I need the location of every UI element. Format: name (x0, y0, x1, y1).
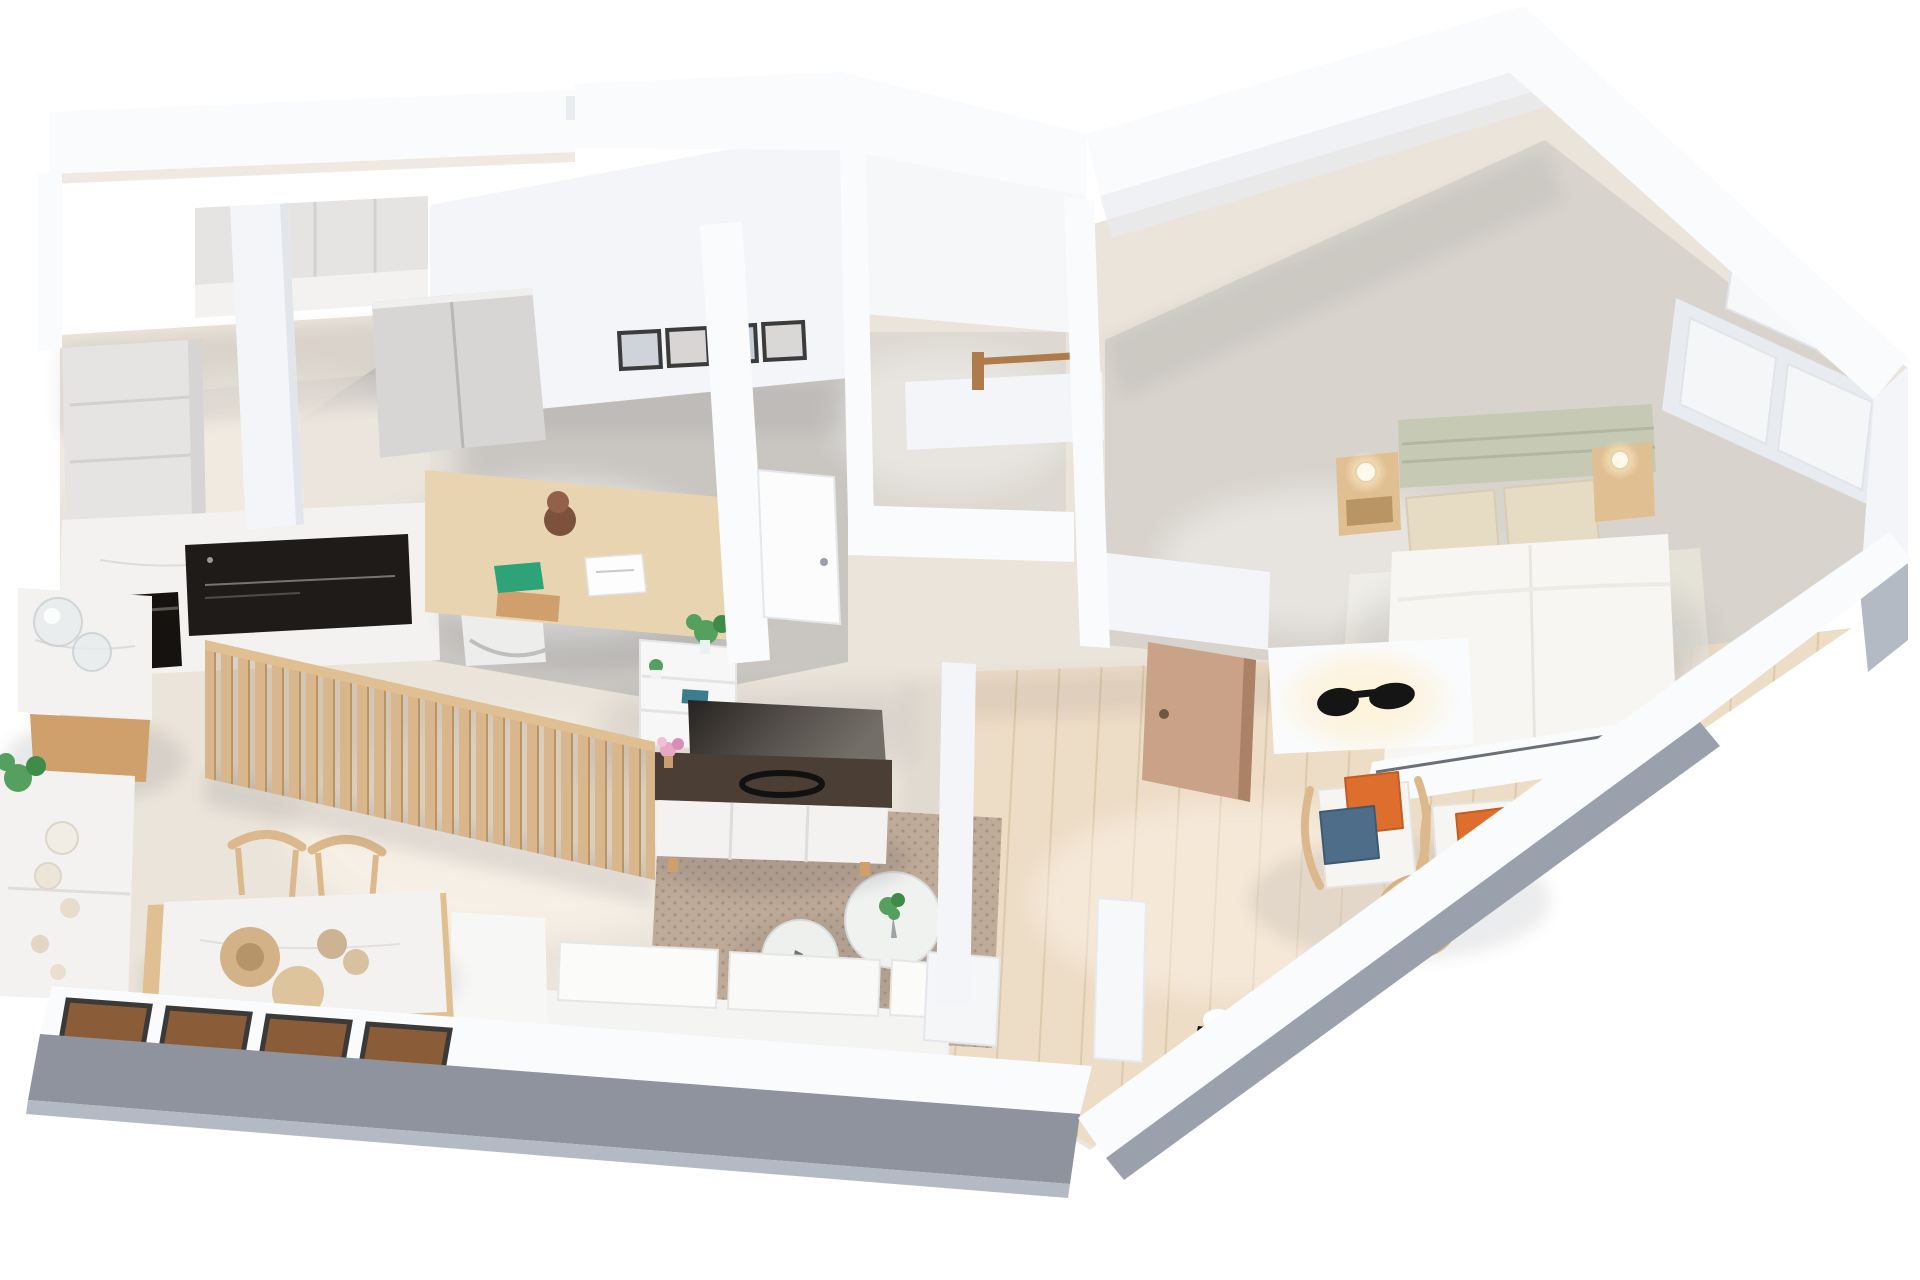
nightstand-right (1592, 440, 1655, 522)
decor-bowl-1 (46, 822, 78, 854)
floorplan-svg (0, 0, 1920, 1280)
console-drawers-marble (656, 800, 888, 864)
pillar (1094, 898, 1146, 1062)
console-top (652, 752, 892, 808)
sofa-back-1 (558, 942, 718, 1008)
nightstand-left (1336, 450, 1401, 536)
closet (372, 288, 546, 458)
armchair-1-blue-pillow (1320, 806, 1379, 864)
decor-shell-2 (31, 935, 49, 953)
sconce-glow (1271, 642, 1461, 758)
sofa-back-2 (728, 952, 880, 1016)
closet-door-right (452, 288, 546, 448)
sideboard-marble (0, 768, 135, 1002)
desk-top (425, 470, 730, 640)
picture-frame-1 (619, 331, 661, 369)
desk-green-pad (494, 562, 544, 593)
nightstand-left-lamp (1356, 462, 1376, 482)
glass-jar-2 (73, 633, 111, 671)
floorplan-render: 3D axonometric floor plan render of a on… (0, 0, 1920, 1280)
hallway-door (758, 470, 840, 624)
table-bowl-4 (343, 949, 369, 975)
front-door-handle (1159, 709, 1169, 719)
living-terrace-divider-wall (936, 662, 976, 1006)
bathroom-south-wall (848, 505, 1074, 562)
decor-shell-3 (50, 964, 66, 980)
sofa-chaise (448, 912, 548, 1035)
tall-cabinets (62, 340, 192, 530)
desk-papers (585, 554, 646, 596)
glass-jar-1 (34, 598, 82, 646)
hallway-door-handle (820, 558, 828, 566)
decor-shell-1 (60, 898, 80, 918)
desk-lamp-head (547, 491, 569, 513)
west-wall (38, 172, 62, 352)
decor-bowl-2 (35, 863, 61, 889)
table-bowl-3 (317, 929, 347, 959)
picture-frame-4 (763, 322, 805, 360)
closet-door-left (372, 295, 462, 458)
nightstand-right-lamp (1611, 451, 1629, 469)
north-wall-study (575, 72, 842, 150)
picture-frame-2 (667, 328, 709, 366)
shelf-small-plant (649, 659, 663, 679)
